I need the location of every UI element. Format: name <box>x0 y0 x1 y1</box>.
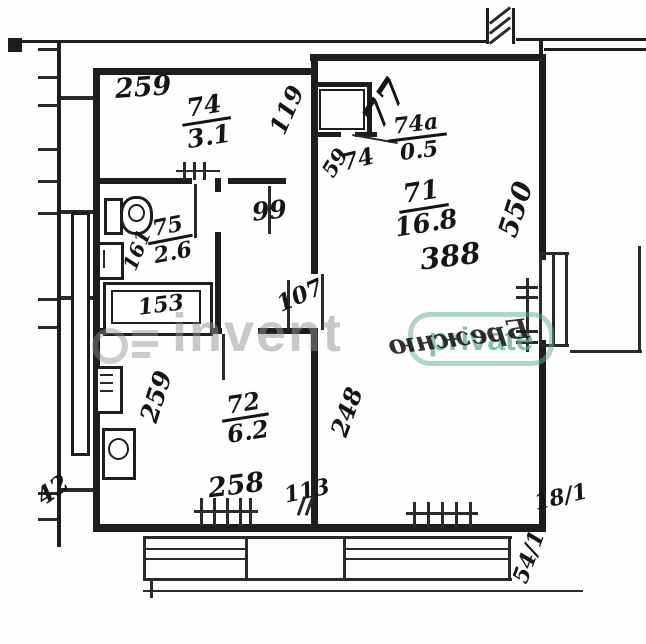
lower-structure-tick <box>150 578 153 598</box>
hatch-right-line <box>512 8 515 44</box>
dim-outside-left: 42 <box>32 471 73 510</box>
dim-tick <box>203 162 206 180</box>
wall-tick <box>38 180 57 183</box>
window-tick <box>441 502 444 528</box>
stove-burner-icon <box>108 438 129 460</box>
closet-top-wall <box>311 82 372 87</box>
wall-connector <box>61 96 93 100</box>
window-tick <box>239 498 242 526</box>
dim-closet-width: 74 <box>340 144 377 174</box>
dim-kitchen-bottom: 258 <box>207 469 266 503</box>
bathroom-right-wall <box>215 178 221 192</box>
room-label-71: 71 16.8 <box>388 173 460 242</box>
window-tick <box>427 502 430 528</box>
watermark-text: invent <box>172 306 343 360</box>
balcony-divider <box>245 536 248 581</box>
lower-structure-line <box>143 590 583 592</box>
wall-tick <box>38 148 57 151</box>
flat-bottom-wall <box>93 524 546 532</box>
room-area: 3.1 <box>185 119 232 153</box>
kitchen-sink-detail <box>100 374 113 376</box>
building-top-line <box>8 40 488 43</box>
window-tick <box>413 502 416 528</box>
wall-tick <box>38 298 57 301</box>
room74-bottom-wall <box>228 178 286 184</box>
hatch-left-line <box>486 8 489 44</box>
dim-tick <box>183 162 186 180</box>
flat-right-wall-upper <box>539 54 546 260</box>
dim-top-width: 259 <box>114 72 172 103</box>
dim-hall-upper: 99 <box>251 196 288 225</box>
neighbor-line <box>570 350 642 353</box>
door-leaf <box>194 184 197 238</box>
washbasin-detail <box>103 250 105 268</box>
floor-plan: invent private Брежню 259 74 3.1 119 77 … <box>0 0 646 644</box>
window-tick <box>516 296 538 299</box>
wall-tick <box>38 104 57 107</box>
room-label-72: 72 6.2 <box>218 387 274 450</box>
toilet-bowl-inner-icon <box>128 204 145 222</box>
neighbor-top-line-1 <box>516 38 646 41</box>
window-tick <box>469 502 472 528</box>
balcony-rail-line <box>346 548 508 550</box>
room-area: 2.6 <box>152 238 194 269</box>
room71-extra-number: 388 <box>418 238 482 274</box>
window-tick <box>516 286 538 289</box>
wall-tick <box>38 48 57 51</box>
shaft-niche <box>71 212 90 456</box>
dim-bath-side: 161 <box>120 227 154 273</box>
dim-kitchen-side: 259 <box>136 368 176 425</box>
wall-tick <box>38 518 57 521</box>
dim-room74-right: 119 <box>266 82 308 138</box>
kitchen-sink-detail <box>100 390 113 392</box>
wall-tick <box>38 326 57 329</box>
flat-top-wall-right <box>310 54 546 61</box>
balcony-rail-line <box>146 558 245 560</box>
balcony-rail-line <box>146 548 245 550</box>
dim-kitchen-wall: 113 <box>282 475 332 506</box>
wall-tick <box>38 76 57 79</box>
room74-bottom-wall <box>93 178 192 184</box>
window-line <box>565 252 568 347</box>
window-cap <box>539 252 569 255</box>
room-label-74: 74 3.1 <box>178 89 235 154</box>
dim-tick <box>193 162 196 180</box>
dim-room71-side: 550 <box>495 179 538 241</box>
closet-bottom-wall <box>311 132 341 137</box>
room-label-74a: 74а 0.5 <box>385 109 450 167</box>
neighbor-top-line-2 <box>544 48 646 51</box>
window-tick <box>200 498 203 526</box>
room-area: 0.5 <box>399 137 440 166</box>
balcony-top-line <box>143 536 512 539</box>
flat-left-wall <box>93 68 100 532</box>
dim-bathtub: 153 <box>137 291 185 318</box>
window-tick <box>455 502 458 528</box>
wall-tick <box>38 212 57 215</box>
balcony-bottom-line <box>143 578 512 581</box>
balcony-rail-line <box>346 558 508 560</box>
kitchen-sink-detail <box>100 382 113 384</box>
central-wall-upper <box>311 54 318 274</box>
window-tick <box>249 498 252 526</box>
room-area: 6.2 <box>225 416 270 449</box>
dim-room71-wall: 248 <box>327 384 367 439</box>
neighbor-line <box>638 246 641 353</box>
dim-outside-bottom: 54/1 <box>509 528 548 586</box>
